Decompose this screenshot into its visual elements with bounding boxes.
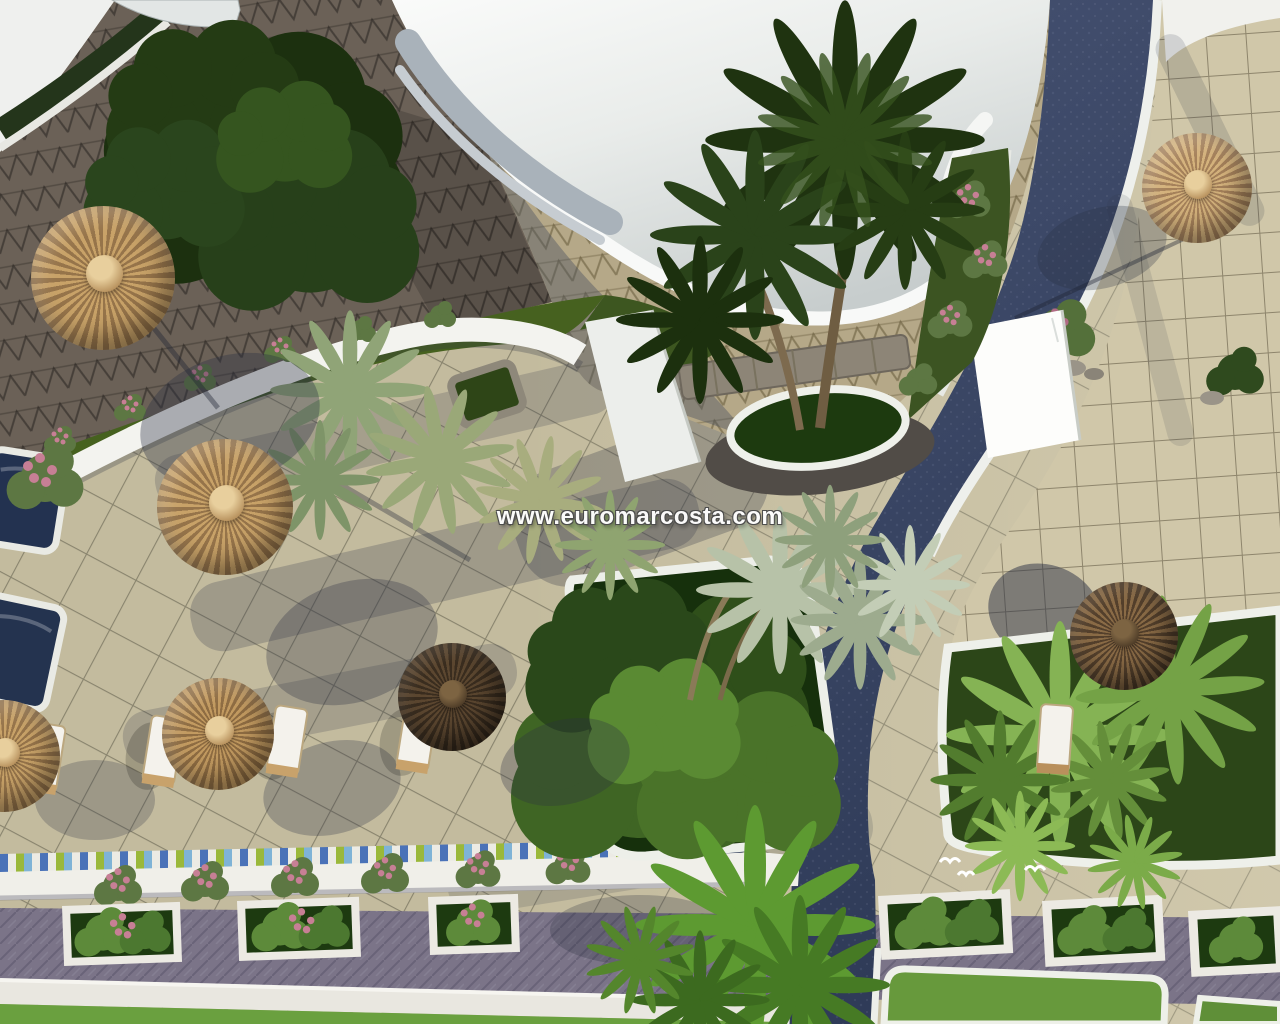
straw-parasol	[157, 439, 293, 575]
straw-parasol	[1070, 582, 1178, 690]
aerial-resort-render: www.euromarcosta.com	[0, 0, 1280, 1024]
straw-parasol	[162, 678, 274, 790]
straw-parasol	[398, 643, 506, 751]
watermark: www.euromarcosta.com	[497, 503, 784, 531]
straw-parasol	[31, 206, 175, 350]
white-kiosk	[970, 310, 1080, 458]
straw-parasol	[1142, 133, 1252, 243]
